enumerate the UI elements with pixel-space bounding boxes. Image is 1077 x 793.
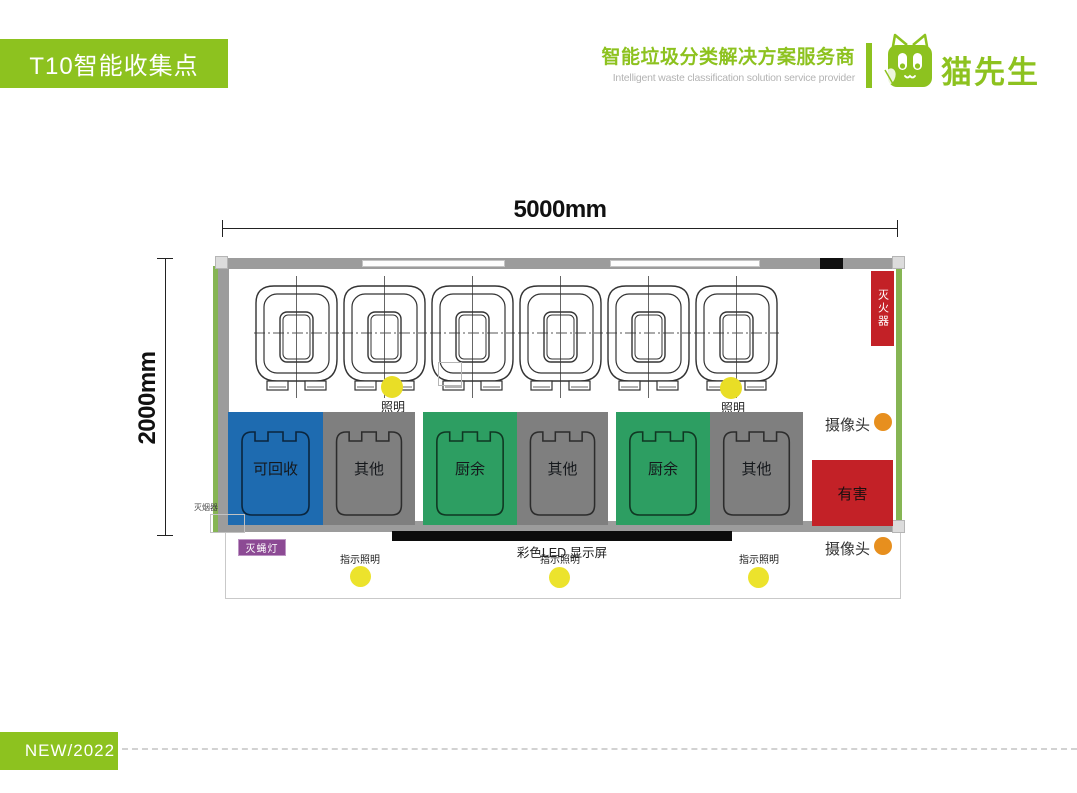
green-strip-right: [896, 266, 902, 532]
dim-width-line: [222, 228, 897, 229]
header-taglines: 智能垃圾分类解决方案服务商 Intelligent waste classifi…: [601, 42, 855, 84]
smoke-extinguisher-box: [210, 514, 245, 533]
brand-divider: [866, 43, 872, 88]
bin-recyclable: 可回收: [228, 412, 323, 525]
dim-tick: [157, 258, 173, 259]
bin-label: 其他: [354, 458, 384, 479]
indicator-light: [748, 567, 769, 588]
tagline-zh: 智能垃圾分类解决方案服务商: [601, 42, 855, 69]
bin-top-outline: [518, 276, 603, 398]
bin-top-outline: [606, 276, 691, 398]
bin-other: 其他: [710, 412, 803, 525]
dim-height-label: 2000mm: [134, 348, 162, 448]
page-title: T10智能收集点: [0, 39, 228, 88]
wall-corner: [892, 256, 905, 269]
new-year-badge: NEW/2022: [0, 732, 118, 770]
indicator-light-label: 指示照明: [520, 551, 600, 566]
bin-label: 厨余: [648, 458, 678, 479]
dim-width-label: 5000mm: [460, 196, 660, 224]
tagline-en: Intelligent waste classification solutio…: [601, 72, 855, 84]
wall-window: [610, 260, 760, 267]
dim-height-line: [165, 258, 166, 535]
bin-label: 其他: [741, 458, 771, 479]
bin-other: 其他: [517, 412, 608, 525]
bin-label: 可回收: [253, 458, 298, 479]
led-display-bar: [392, 531, 732, 541]
camera-icon: [874, 537, 892, 555]
wall-window: [362, 260, 505, 267]
bin-kitchen: 厨余: [616, 412, 710, 525]
dim-tick: [157, 535, 173, 536]
footer-divider: [122, 748, 1077, 750]
brand-name: 猫先生: [941, 47, 1040, 92]
bin-label: 有害: [837, 483, 867, 504]
floor-detail-square: [438, 362, 462, 386]
indicator-light-label: 指示照明: [719, 551, 799, 566]
indicator-light: [350, 566, 371, 587]
ceiling-light: [381, 376, 403, 398]
bin-kitchen: 厨余: [423, 412, 517, 525]
bin-label: 厨余: [455, 458, 485, 479]
fire-extinguisher: 灭火器: [871, 271, 894, 346]
ceiling-light: [720, 377, 742, 399]
wall-top: [218, 258, 903, 269]
fly-lamp: 灭蝇灯: [238, 539, 286, 556]
bin-label: 其他: [547, 458, 577, 479]
bin-hazardous: 有害: [812, 460, 893, 526]
camera-label: 摄像头: [800, 538, 870, 559]
slide: T10智能收集点 智能垃圾分类解决方案服务商 Intelligent waste…: [0, 0, 1077, 793]
camera-label: 摄像头: [800, 414, 870, 435]
wall-corner: [215, 256, 228, 269]
indicator-light-label: 指示照明: [320, 551, 400, 566]
dim-tick: [222, 220, 223, 237]
indicator-light: [549, 567, 570, 588]
dim-tick: [897, 220, 898, 237]
camera-icon: [874, 413, 892, 431]
bin-top-outline: [254, 276, 339, 398]
wall-corner: [892, 520, 905, 533]
smoke-extinguisher-label: 灭烟器: [194, 502, 218, 513]
bin-other: 其他: [323, 412, 415, 525]
cat-logo-icon: [880, 32, 940, 92]
wall-vent: [820, 258, 843, 269]
